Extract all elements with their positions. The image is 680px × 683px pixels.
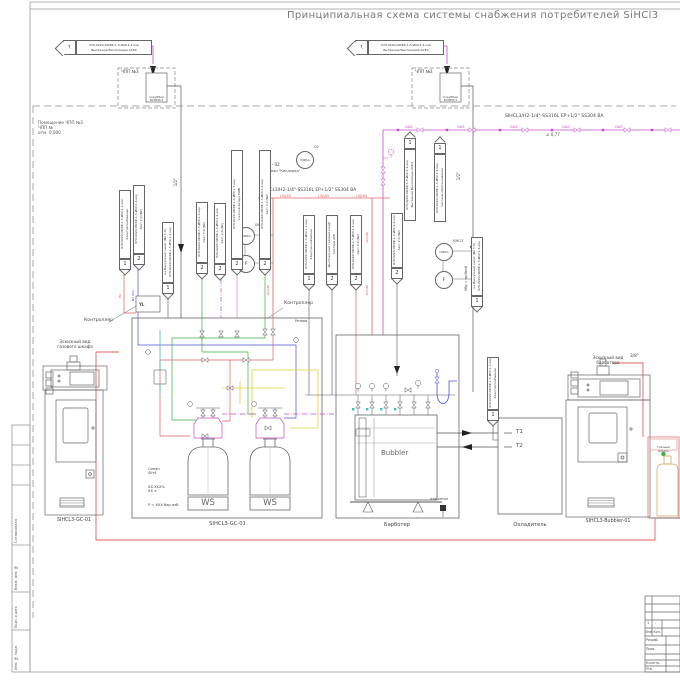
flag-label: 070-0220-ОКЭФ-1-5-ИОС1.2-кор Вытяжная Ве… — [368, 40, 444, 55]
medium-tag: SiHCl3 — [453, 239, 463, 243]
controller-label: Контроллер — [84, 318, 113, 324]
pipe-flag: Центральный газовый шкафСистема АГЕ 2 — [326, 215, 338, 289]
pipe-size-tag: 1/2" — [456, 172, 461, 180]
drawing-title: Принципиальная схема системы снабжения п… — [287, 10, 659, 23]
frame-stamp: Согласовано — [14, 487, 18, 543]
yl-box-label: YL — [139, 302, 144, 307]
liquid-tag-vertical: LIQUID — [366, 285, 370, 295]
liquid-tag: LIQUID — [356, 194, 367, 198]
titleblock-row: Н.контр. — [646, 661, 660, 665]
cooler-label: Охладитель — [505, 522, 555, 529]
silane-note: СиланSiH4 XX.XXX%ХХ л P = XXX бар изб — [148, 458, 178, 507]
right-cabinet-sketch — [566, 359, 650, 517]
pipe-flag: 070-0220-ОКЭФ-1-5-ИОС1.5-корАзот 2.0 (N2… — [350, 215, 362, 289]
flag-label: 070-0220-ОКЭФ-1-5-ИОС1.1-корЭлектроснабж… — [487, 357, 499, 410]
reserve-label: Резерв — [295, 319, 307, 323]
cooler-box — [498, 418, 562, 514]
oxygen-analyzer-instrument: QIRSA — [296, 151, 314, 169]
flag-label: 070-0220-ОКЭФ-1-5-ИОС1.1-корЭлектроснабж… — [303, 215, 315, 274]
pipe-flag: 070-0220-ОКЭФ-1-5-ИОС1.1-корЭлектроснабж… — [303, 215, 315, 289]
n2-tag: N2 (PA) — [132, 290, 136, 301]
titleblock-izm: Изм. — [646, 630, 654, 634]
pipe-flag-up: 1 070-0220-ОКЭФ-1-5-ИОС1.2-корВытяжная В… — [404, 133, 416, 221]
flag-label: 070-0220-ОКЭФ-1-5-ИОС1.4-корАзот 2.0 (N2… — [391, 213, 403, 268]
bubbler-label: Барботер — [368, 522, 426, 529]
gas-spec-label: SIHCL3/H2-1/4"-SS316L EP+1/2" SS304 BA — [505, 114, 604, 120]
oxygen-sup: O2 — [314, 145, 319, 149]
flag-label: 070-0220-ОКЭФ-1-5-ИОС1.5-корАзот 2.0 (N2… — [350, 215, 362, 274]
cooler-t2: T2 — [516, 443, 523, 450]
liquid-tag: LIQUID — [318, 194, 329, 198]
flag-label: на Вакуумный насос (N2 5.0)070-0220-ОКЭФ… — [162, 222, 174, 283]
left-cabinet-caption: Эскизный видгазового шкафа — [47, 328, 103, 349]
room-note: Помещение ЧПП №3ЧПП №отм. 0,000 — [38, 109, 83, 135]
pipe-flag: на Вакуумный насос (N2 5.0)070-0220-ОКЭФ… — [162, 222, 174, 298]
gas-tag: GAS — [457, 125, 465, 129]
room-tag-right: ЧПП №3 — [415, 69, 433, 74]
cooler-t1: T1 — [516, 429, 523, 436]
pipe-flag: 070-0220-ОКЭФ-1-5-ИОС1.1-корЭлектроснабж… — [119, 190, 131, 274]
flag-label: на Вакуумный насос (N2 5.0)070-0220-ОКЭФ… — [471, 237, 483, 296]
gas-tag: GAS — [510, 125, 518, 129]
flag-label: 070-0220-ОКЭФ-1-5-ИОС1.2-корВытяжная Вен… — [404, 149, 416, 222]
pipe-flag: 070-0220-ОКЭФ-1-5-ИОС1.3-корАзот 3.0 (N2… — [196, 202, 208, 278]
pipe-flag: 070-0220-ОКЭФ-1-5-ИОС1.4-корАзот 2.0 (N2… — [391, 213, 403, 283]
analyzer-instrument: QIRSA — [435, 243, 453, 261]
vent-flag-left: 1 070-0220-ОКЭФ-1-5-ИОС1.2-кор Вытяжная … — [57, 40, 152, 55]
titleblock-row: Утв. — [646, 667, 653, 671]
scrubber-left-label: СкрубберБСКРЛ/1 — [144, 88, 169, 103]
liquid-tag-vertical: LIQUID — [366, 232, 370, 242]
titleblock-row: Разраб. — [646, 638, 659, 642]
scrubber-right-label: СкрубберБСКРЛ/1 — [438, 88, 463, 103]
purge-cylinder-caption: Газовыйбаллон — [650, 440, 677, 454]
bubbler-box — [305, 335, 512, 518]
gas-tag: GAS — [405, 125, 413, 129]
pipe-size-tag: 1/2" — [173, 178, 178, 186]
flag-label: 070-0220-ОКЭФ-1-5-ИОС1.6-корСистема обес… — [434, 154, 446, 223]
ws-cylinder-label: WS — [250, 498, 290, 509]
frame-stamp: Взам. инв. № — [14, 547, 18, 590]
flag-label: 070-0220-ОКЭФ-1-5-ИОС1.3-корАзот 3.0 (N2… — [196, 202, 208, 263]
flag-label: 070-0220-ОКЭФ-1-5-ИОС1.4-корАзот 2.0 (N2… — [214, 203, 226, 264]
pipe-flag: 070-0220-ОКЭФ-1-5-ИОС1.5-корСжатый возду… — [231, 150, 243, 274]
pipe-flag: на Вакуумный насос (N2 5.0)070-0220-ОКЭФ… — [471, 237, 483, 311]
titleblock-rev-dash: - — [655, 621, 656, 625]
liquid-header-line — [258, 198, 390, 335]
gas-slope-label: ∠ 0,77 — [546, 132, 560, 137]
flag-label: 070-0220-ОКЭФ-1-5-ИОС1.4-корАзот 3.0 (N2… — [259, 150, 271, 259]
flag-line2: Вытяжная Вентиляция АСЕХ — [369, 48, 443, 53]
left-cabinet-sketch — [43, 356, 107, 515]
pipe-flag: 070-0220-ОКЭФ-1-5-ИОС1.4-корАзот 3.0 (N2… — [259, 150, 271, 274]
drawing-sheet: Принципиальная схема системы снабжения п… — [0, 0, 680, 683]
pipe-flag: 070-0220-ОКЭФ-1-5-ИОС1.4-корАзот 2.0 (N2… — [214, 203, 226, 279]
sample-note: Обр. с трубкой — [464, 266, 468, 291]
gas-tag: GAS — [562, 125, 570, 129]
gas-header-line — [381, 128, 680, 335]
titleblock-rev: 1 — [647, 621, 649, 625]
leak-sensor-label: leak sensor — [430, 497, 448, 501]
titleblock-kol: Кол. — [654, 630, 661, 634]
pipe-flag: 070-0220-ОКЭФ-1-5-ИОС1.4-корАзот 2.0 (N2… — [133, 185, 145, 269]
pipe-flag-up: 1 070-0220-ОКЭФ-1-5-ИОС1.6-корСистема об… — [434, 138, 446, 222]
liquid-tag-vertical: LIQUID — [267, 285, 271, 295]
flow-instrument: F — [435, 271, 453, 289]
ws-cylinder-label: WS — [188, 498, 228, 509]
liquid-spec-label: SIHCL3/H2-1/4"-SS316L EP+1/2" SS304 BA — [262, 188, 356, 194]
right-cabinet-label: SIHCL3-Bubbler-01 — [577, 519, 639, 525]
bubbler-tank-name: Bubbler — [381, 449, 408, 458]
liquid-tag: LIQUID — [280, 194, 291, 198]
vent-flag-right: 1 070-0220-ОКЭФ-1-5-ИОС1.2-кор Вытяжная … — [349, 40, 444, 55]
frame-stamp: Подп. и дата — [14, 594, 18, 628]
left-cabinet-label: SIHCL3-GC-01 — [45, 518, 103, 524]
flag-label: 070-0220-ОКЭФ-1-5-ИОС1.2-кор Вытяжная Ве… — [76, 40, 152, 55]
controller-label: Контроллер — [284, 301, 313, 307]
sheet-frame — [12, 2, 680, 672]
frame-stamp: Инв. № подл. — [14, 632, 18, 670]
flag-line2: Вытяжная Вентиляция АСЕХ — [77, 48, 151, 53]
flag-label: Центральный газовый шкафСистема АГЕ — [326, 215, 338, 274]
titleblock-row: Пров. — [646, 647, 655, 651]
right-cabinet-caption: Эскизный видбарботера — [577, 344, 639, 365]
flag-label: 070-0220-ОКЭФ-1-5-ИОС1.4-корАзот 2.0 (N2… — [133, 185, 145, 254]
gas-tag: GAS — [615, 125, 623, 129]
pg-tag: PG — [119, 294, 123, 298]
center-unit-label: SIHCL3-GC-01 — [200, 521, 255, 528]
flag-label: 070-0220-ОКЭФ-1-5-ИОС1.5-корСжатый возду… — [231, 150, 243, 259]
pipe-flag: 070-0220-ОКЭФ-1-5-ИОС1.1-корЭлектроснабж… — [487, 357, 499, 425]
room-tag-left: ЧПП №3 — [121, 69, 139, 74]
flag-label: 070-0220-ОКЭФ-1-5-ИОС1.1-корЭлектроснабж… — [119, 190, 131, 259]
